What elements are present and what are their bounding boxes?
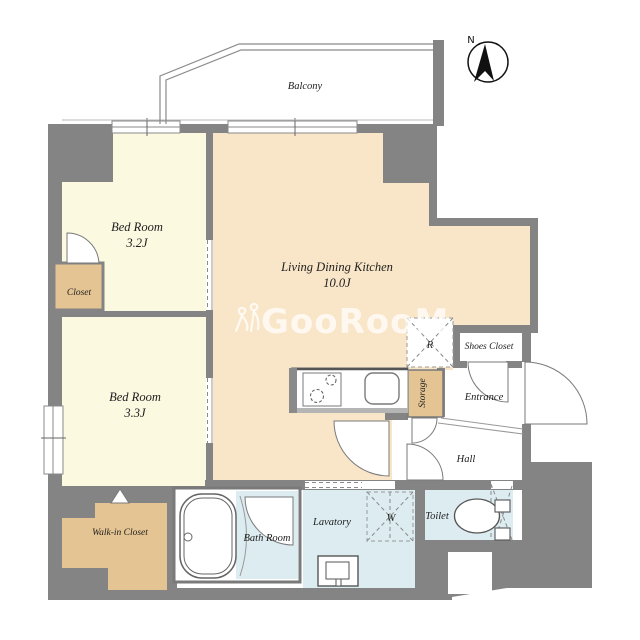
wall-shoes-left	[453, 333, 460, 362]
toilet-label: Toilet	[425, 511, 450, 522]
notch-below-toilet	[448, 552, 492, 594]
window-bedroom-b-left	[41, 406, 66, 474]
bath-label: Bath Room	[244, 533, 291, 544]
storage-label: Storage	[418, 378, 428, 408]
wall-wic-below-left	[62, 566, 108, 588]
wall-bedroom-divider	[62, 311, 213, 317]
balcony-outline	[62, 44, 433, 124]
compass-north-label: N	[467, 35, 474, 46]
ldk-size: 10.0J	[323, 276, 352, 290]
entrance-door	[525, 362, 587, 424]
lavatory-door	[407, 444, 443, 480]
wall-notch-topright	[383, 126, 437, 183]
wall-shoes-top	[453, 325, 538, 333]
counter-left-cap	[289, 368, 297, 413]
wall-wic-left-top	[62, 504, 95, 520]
window-ldk-top	[228, 118, 357, 136]
bedroom-a-label: Bed Room	[111, 220, 163, 234]
bedroom-b-size: 3.3J	[123, 406, 147, 420]
kitchen-sink	[365, 373, 399, 404]
refrigerator-label: R	[426, 340, 434, 351]
entrance-step-line	[438, 418, 523, 434]
walk-in-closet-label: Walk-in Closet	[92, 528, 148, 538]
wall-step-right	[429, 218, 538, 226]
gooroom-watermark: GooRooM	[236, 302, 449, 342]
lavatory-sink	[318, 556, 358, 586]
watermark-text: GooRooM	[261, 302, 449, 342]
window-bedroom-a-top	[112, 118, 180, 136]
closet-label: Closet	[67, 288, 92, 298]
wall-right-b	[530, 218, 538, 330]
balcony-label: Balcony	[288, 81, 323, 92]
wall-left	[48, 132, 62, 600]
wall-right-c	[522, 333, 531, 362]
wall-right-a	[429, 183, 437, 223]
toilet-door-opening	[491, 481, 513, 489]
wall-storage-hall-nub	[385, 413, 408, 420]
bathtub	[180, 494, 236, 578]
shoes-closet-label: Shoes Closet	[465, 342, 514, 352]
wall-toilet-left	[415, 481, 425, 543]
wall-below-toilet	[415, 540, 592, 588]
lavatory-door-opening	[362, 481, 395, 489]
lavatory-label: Lavatory	[312, 517, 351, 528]
compass: N	[467, 35, 508, 82]
floor-plan: N GooRooM Balcony Bed Room 3.2J Closet B…	[0, 0, 640, 640]
ldk-label: Living Dining Kitchen	[280, 260, 393, 274]
closet-box	[54, 263, 103, 310]
counter-bottom-strip	[292, 408, 408, 413]
washer-label: W	[387, 513, 397, 524]
bedroom-b-label: Bed Room	[109, 390, 161, 404]
storage-door	[412, 418, 437, 443]
kitchen-counter	[289, 368, 408, 413]
hall-label: Hall	[456, 454, 476, 465]
wall-shoes-bottom-a	[453, 361, 467, 368]
wall-balcony-right-block	[433, 40, 444, 126]
entrance-label: Entrance	[464, 392, 504, 403]
bedroom-a-size: 3.2J	[125, 236, 149, 250]
stove	[303, 373, 341, 406]
